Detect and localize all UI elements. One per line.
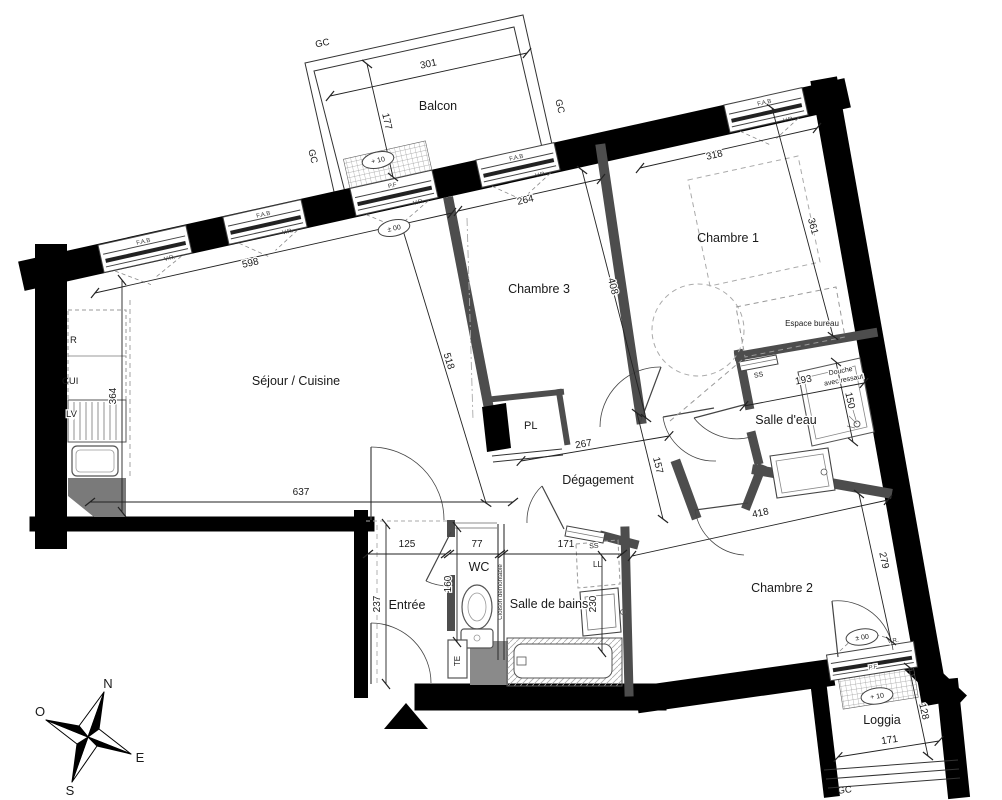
loggia-railing — [824, 760, 960, 788]
compass-rose — [46, 692, 131, 782]
label-cui: CUI — [62, 376, 78, 387]
dim-sdb-w: 171 — [558, 539, 575, 550]
window-chambre1: F.A.B V.R. — [724, 88, 813, 154]
dim-vasque: 230 — [588, 595, 599, 612]
label-gc-left: GC — [305, 148, 319, 165]
label-te: TE — [453, 656, 462, 666]
window-sejour-2: F.A.B V.R. — [223, 200, 312, 266]
dim-entree-w: 125 — [399, 539, 416, 550]
room-label-sejour: Séjour / Cuisine — [252, 374, 340, 388]
dim-ch1-d: 361 — [805, 217, 820, 236]
floor-plan-canvas: F.A.B V.R. F.A.B V.R. P.F V.R. F.A.B V.R… — [0, 0, 1002, 800]
compass-e: E — [136, 750, 145, 765]
room-label-wc: WC — [469, 560, 490, 574]
window-sejour-1: F.A.B V.R. — [98, 226, 197, 294]
door-vr-label: V.R. — [413, 199, 425, 207]
label-lv: LV — [66, 409, 78, 420]
label-r: R — [70, 335, 77, 346]
label-ss-salle-eau: SS — [753, 371, 764, 380]
dim-ch2-d: 279 — [876, 551, 890, 570]
room-label-salle-eau: Salle d'eau — [755, 413, 817, 427]
room-label-entree: Entrée — [389, 598, 426, 612]
dim-loggia-d: 128 — [916, 702, 931, 721]
dim-wc-w: 77 — [471, 539, 483, 550]
room-label-salle-bains: Salle de bains — [510, 597, 589, 611]
label-ll: LL — [593, 560, 602, 569]
kitchen-counter — [68, 478, 126, 517]
dim-wc-d: 160 — [443, 575, 454, 592]
room-label-espace-bureau: Espace bureau — [785, 319, 839, 328]
room-label-balcon: Balcon — [419, 99, 457, 113]
dim-sejour-ch3: 518 — [441, 352, 457, 372]
room-label-chambre2: Chambre 2 — [751, 581, 813, 595]
dim-sejour-top: 598 — [241, 256, 260, 270]
dim-ch1-w: 318 — [705, 148, 724, 162]
compass-o: O — [35, 704, 45, 719]
compass-n: N — [103, 676, 112, 691]
kitchen-units — [68, 300, 130, 478]
bathtub — [507, 638, 622, 686]
dim-entree-d: 237 — [372, 595, 383, 612]
vasque-salle-eau — [770, 448, 835, 498]
label-gc-right: GC — [552, 98, 566, 115]
floor-plan: F.A.B V.R. F.A.B V.R. P.F V.R. F.A.B V.R… — [0, 0, 1002, 800]
dim-sejour-left: 364 — [108, 387, 119, 404]
label-gc-loggia: GC — [837, 784, 853, 797]
dim-ch2-w: 418 — [751, 506, 770, 520]
room-label-chambre3: Chambre 3 — [508, 282, 570, 296]
room-label-degagement: Dégagement — [562, 473, 634, 487]
dim-sejour-bottom: 637 — [293, 487, 310, 498]
dim-balcon-w: 301 — [419, 57, 438, 71]
label-gc-top: GC — [314, 37, 330, 51]
closet-black-fill — [482, 403, 511, 452]
room-label-chambre1: Chambre 1 — [697, 231, 759, 245]
compass-s: S — [66, 783, 75, 798]
label-ss-sdb: SS — [589, 543, 599, 551]
dim-ch3-w: 264 — [516, 193, 535, 207]
toilet — [461, 585, 493, 648]
dim-deg-d: 157 — [650, 456, 665, 475]
label-cloison: Cloison démontable — [497, 564, 504, 620]
label-pl: PL — [524, 420, 537, 432]
dim-loggia-w: 171 — [881, 734, 900, 748]
wc-threshold — [455, 523, 497, 528]
room-label-loggia: Loggia — [863, 713, 901, 727]
